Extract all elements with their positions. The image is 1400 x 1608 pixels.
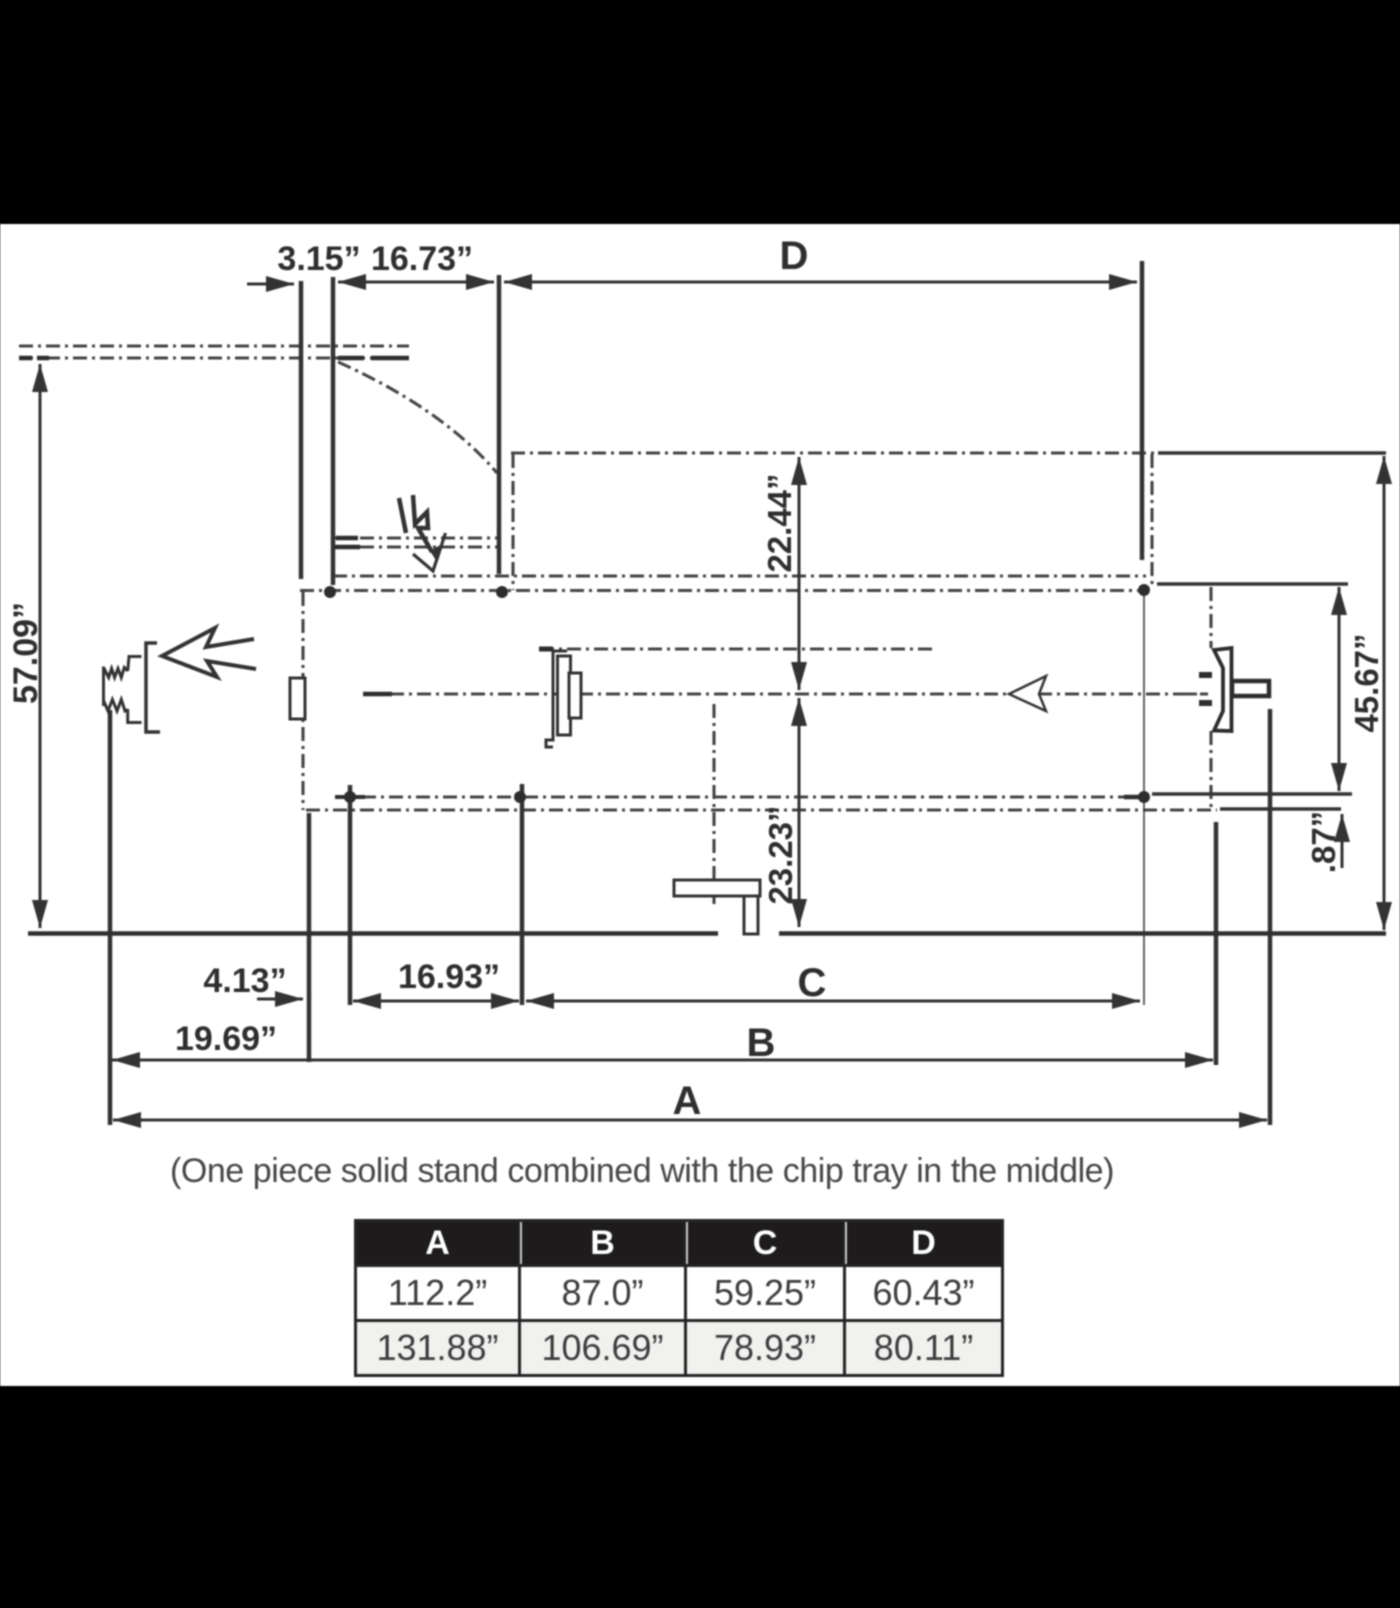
svg-text:A: A <box>673 1079 702 1123</box>
svg-text:16.73”: 16.73” <box>371 240 473 278</box>
svg-text:57.09”: 57.09” <box>7 602 45 704</box>
svg-text:23.23”: 23.23” <box>762 805 799 904</box>
svg-text:22.44”: 22.44” <box>761 473 798 572</box>
svg-text:D: D <box>780 234 809 278</box>
svg-text:C: C <box>798 961 827 1005</box>
svg-text:3.15”: 3.15” <box>277 240 360 278</box>
svg-text:.87”: .87” <box>1305 811 1342 873</box>
svg-text:B: B <box>747 1021 776 1065</box>
svg-text:19.69”: 19.69” <box>175 1020 277 1058</box>
svg-text:16.93”: 16.93” <box>398 958 500 996</box>
svg-text:4.13”: 4.13” <box>203 962 286 1000</box>
svg-text:45.67”: 45.67” <box>1348 633 1385 732</box>
